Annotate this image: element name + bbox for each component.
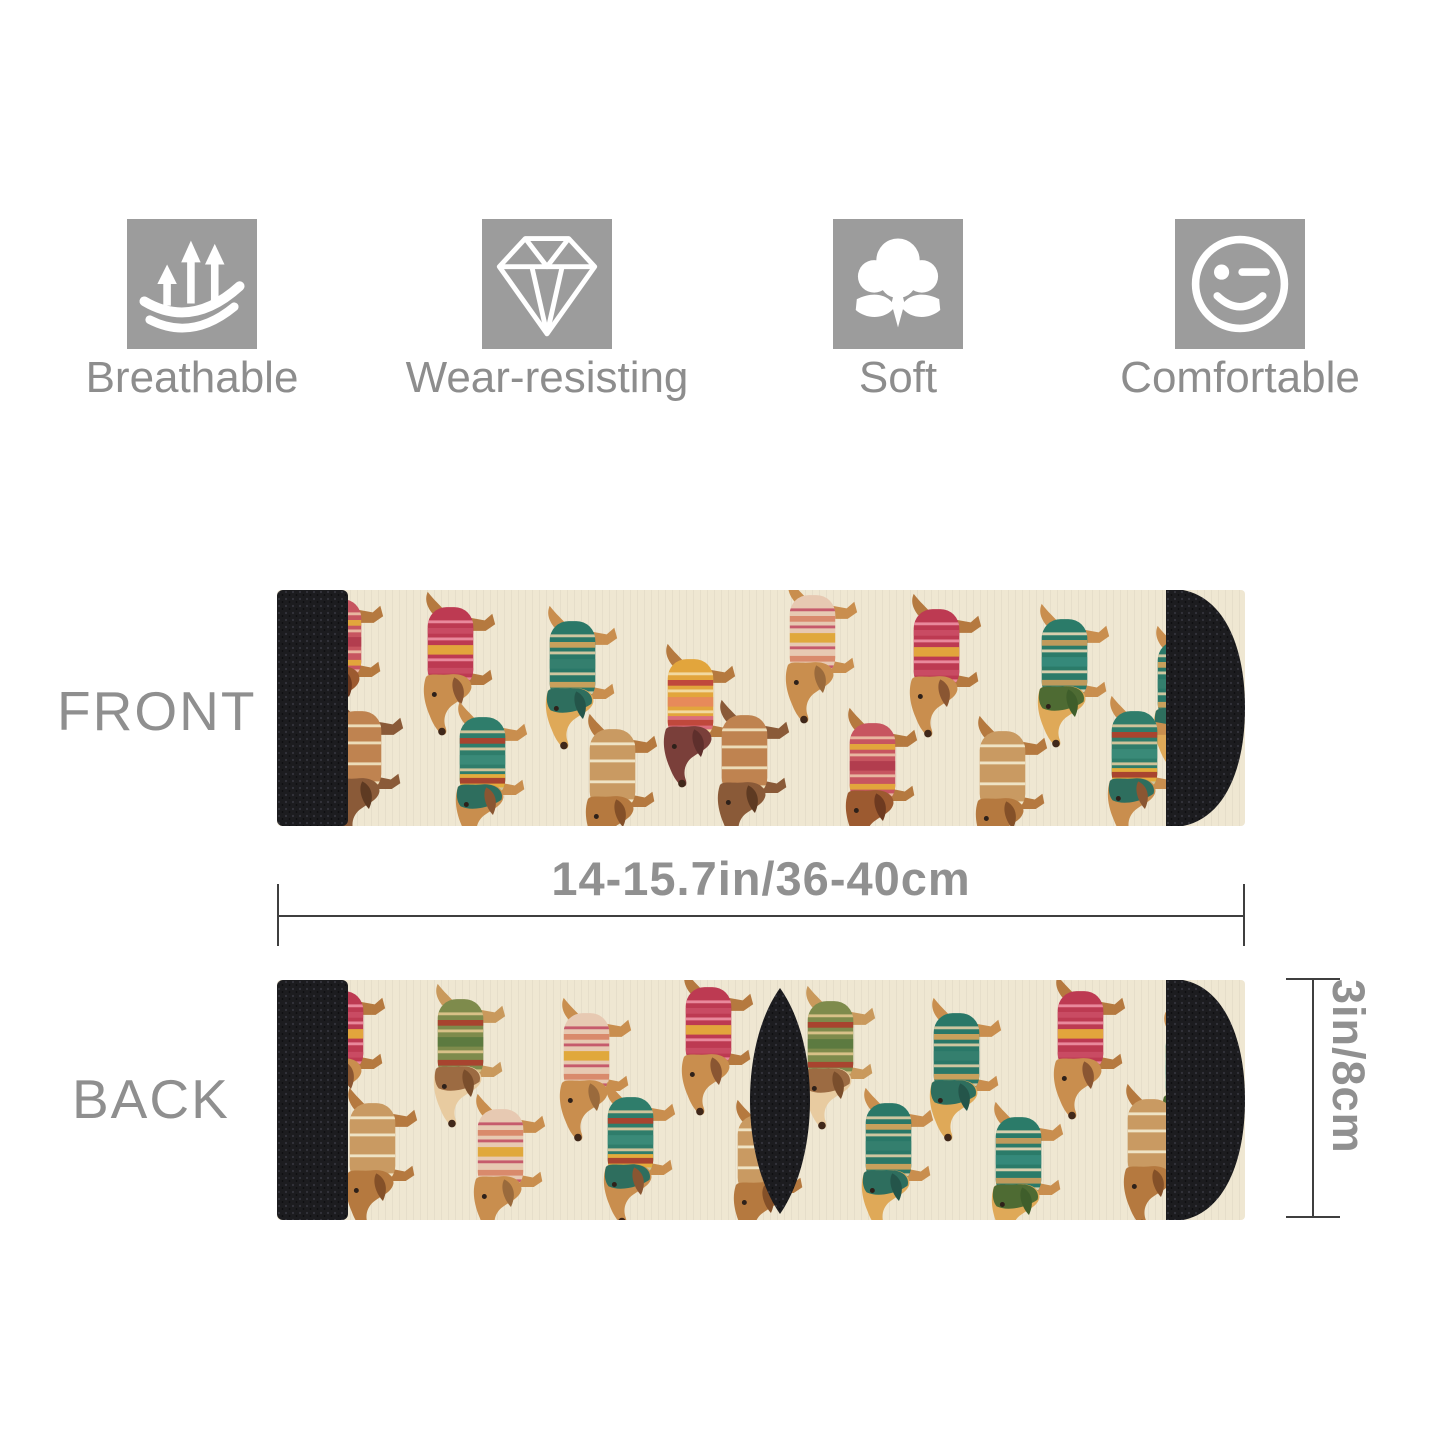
feature-label-soft: Soft bbox=[859, 352, 937, 404]
feature-label-breathable: Breathable bbox=[86, 352, 299, 404]
front-sock-cuff bbox=[277, 590, 348, 826]
cotton-flower-icon bbox=[833, 218, 963, 350]
product-infographic: Breathable Wear-resisting Soft bbox=[0, 0, 1445, 1445]
width-dimension-label: 14-15.7in/36-40cm bbox=[277, 851, 1245, 906]
diamond-icon bbox=[482, 218, 612, 350]
height-dimension-line bbox=[1312, 979, 1314, 1218]
back-view-label: BACK bbox=[72, 1067, 230, 1131]
front-sock-image bbox=[277, 590, 1245, 826]
back-sock-cuff bbox=[277, 980, 348, 1220]
front-view-label: FRONT bbox=[57, 679, 256, 743]
feature-label-comfortable: Comfortable bbox=[1120, 352, 1360, 404]
width-dimension-tick-right bbox=[1243, 884, 1245, 946]
width-dimension-line bbox=[277, 915, 1245, 917]
feature-label-wear-resisting: Wear-resisting bbox=[406, 352, 689, 404]
back-sock-image bbox=[277, 980, 1245, 1220]
wink-smiley-icon bbox=[1175, 218, 1305, 350]
width-dimension-tick-left bbox=[277, 884, 279, 946]
height-dimension-label: 3in/8cm bbox=[1322, 979, 1374, 1218]
breathable-arrows-icon bbox=[127, 218, 257, 350]
